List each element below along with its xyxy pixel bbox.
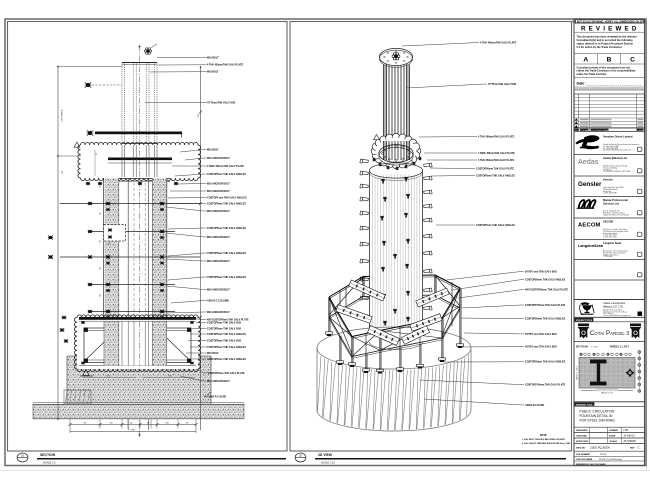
svg-text:4 THK 450mmTHK GALV PLATE: 4 THK 450mmTHK GALV PLATE	[207, 64, 244, 67]
svg-text:Aedas: Aedas	[578, 157, 599, 166]
svg-text:450*COSTOP50mm THK GALV PLATE: 450*COSTOP50mm THK GALV PLATE	[525, 289, 568, 292]
svg-text:T 2875-3088: T 2875-3088	[603, 256, 612, 258]
svg-text:4 THK 450mmTHK GALV PLATE: 4 THK 450mmTHK GALV PLATE	[478, 159, 515, 162]
svg-text:4 SIDE 450mmTHK GALV PLATE: 4 SIDE 450mmTHK GALV PLATE	[478, 152, 515, 155]
svg-text:50: 50	[96, 153, 98, 155]
svg-text:Services Ltd.: Services Ltd.	[603, 201, 620, 205]
svg-text:DO NOT SCALE DRAWING. VERIFY A: DO NOT SCALE DRAWING. VERIFY ALL DIMENSI…	[573, 20, 647, 23]
svg-text:COSTOP5mm THK GALV ANGLES: COSTOP5mm THK GALV ANGLES	[207, 227, 246, 230]
svg-text:DESIGNED: DESIGNED	[576, 430, 588, 432]
svg-text:M16 ANCHOR BOLT: M16 ANCHOR BOLT	[207, 182, 230, 185]
svg-text:COSTOP5mm THK GALV SHS: COSTOP5mm THK GALV SHS	[207, 339, 241, 342]
svg-text:DRAWN: DRAWN	[610, 429, 619, 432]
svg-text:KEY PLAN: KEY PLAN	[576, 345, 588, 348]
svg-text:Date :: Date :	[577, 82, 587, 86]
svg-text:COSTOP5mm THK GALV ANGLES: COSTOP5mm THK GALV ANGLES	[207, 346, 246, 349]
svg-text:2. ALL FILLET WELDED SHOULD BE: 2. ALL FILLET WELDED SHOULD BE 6mm THK.	[522, 442, 571, 445]
svg-text:This document has been reviewe: This document has been reviewed by the r…	[577, 34, 637, 38]
svg-text:COTAI PARCEL 3: COTAI PARCEL 3	[590, 330, 629, 337]
svg-text:M16 ANCHOR BOLT: M16 ANCHOR BOLT	[207, 260, 230, 263]
svg-text:AECOM: AECOM	[603, 220, 614, 224]
svg-text:Rua de Xangai No.175: Rua de Xangai No.175	[603, 211, 620, 213]
svg-text:500: 500	[100, 240, 102, 243]
svg-text:SECTION: SECTION	[40, 453, 56, 457]
svg-text:13/F, O Macau: 13/F, O Macau	[603, 313, 613, 315]
svg-text:300: 300	[147, 422, 150, 424]
svg-text:status referred to in Project: status referred to in Project Procedure …	[577, 42, 634, 46]
svg-text:AS SHOWN: AS SHOWN	[624, 440, 637, 443]
svg-text:No.263, Edif. China Civil Plaz: No.263, Edif. China Civil Plaza,	[603, 252, 626, 254]
svg-text:A2060 R.C BASE: A2060 R.C BASE	[525, 404, 545, 407]
svg-text:DATE: DATE	[610, 435, 616, 438]
svg-text:844: 844	[166, 422, 169, 424]
svg-text:M16 BOLT: M16 BOLT	[207, 148, 219, 151]
svg-text:Venetian Orient Limited: Venetian Orient Limited	[603, 135, 633, 139]
svg-text:4 THK 450mmTHK GALV PLATE: 4 THK 450mmTHK GALV PLATE	[478, 136, 515, 139]
svg-text:COSTOP5*50mm THK GALV PLATE: COSTOP5*50mm THK GALV PLATE	[525, 304, 566, 307]
svg-text:AECOM: AECOM	[578, 223, 601, 229]
svg-text:NOTE:: NOTE:	[540, 435, 547, 437]
svg-text:SCALE: SCALE	[610, 440, 618, 443]
svg-text:COSTOP5mm THK GALV SHS: COSTOP5mm THK GALV SHS	[207, 321, 241, 324]
svg-text:LangdonSeah: LangdonSeah	[578, 244, 604, 248]
svg-text:5.4 for action by the Trade Co: 5.4 for action by the Trade Contractor.	[577, 45, 623, 49]
svg-text:M16 ANCHOR BOLT: M16 ANCHOR BOLT	[207, 311, 230, 314]
svg-text:M16 BOLT: M16 BOLT	[207, 71, 219, 74]
svg-text:Aedas (Macau) Ltd.: Aedas (Macau) Ltd.	[603, 156, 627, 160]
svg-text:SCALE 1:5: SCALE 1:5	[43, 461, 56, 464]
svg-text:1786: 1786	[198, 114, 200, 118]
svg-text:300: 300	[130, 422, 133, 424]
svg-text:REV: REV	[630, 447, 635, 449]
svg-text:FOUNTAIN DETAIL IN: FOUNTAIN DETAIL IN	[580, 414, 614, 418]
svg-text:CHECKED: CHECKED	[576, 436, 587, 438]
svg-text:1786 (VARIES): 1786 (VARIES)	[61, 109, 64, 122]
svg-text:M16 BOLT: M16 BOLT	[207, 352, 219, 355]
svg-text:C: C	[630, 57, 635, 64]
svg-text:COSTOP50mm THK GALV ANGLES: COSTOP50mm THK GALV ANGLES	[525, 279, 566, 282]
svg-text:COSTOP50mm THK GALV PLATE: COSTOP50mm THK GALV PLATE	[476, 168, 514, 171]
svg-text:DWG NO: DWG NO	[576, 447, 586, 449]
svg-text:1. ALL BOLT SHOULD BE FIXING O: 1. ALL BOLT SHOULD BE FIXING ON SITE.	[522, 438, 566, 441]
svg-text:M16 ANCHOR BOLT: M16 ANCHOR BOLT	[207, 380, 230, 383]
svg-text:COSTOP5mm THK GALV ANGLES: COSTOP5mm THK GALV ANGLES	[207, 173, 246, 176]
svg-text:B: B	[607, 57, 612, 64]
svg-text:PARCEL 1, LOT 2: PARCEL 1, LOT 2	[610, 345, 630, 348]
svg-text:14-JUN-13: 14-JUN-13	[624, 436, 636, 438]
svg-text:under the Trade Contract.: under the Trade Contract.	[577, 73, 608, 76]
svg-text:31529: 31529	[600, 454, 607, 456]
svg-text:M16 BOLT: M16 BOLT	[207, 56, 219, 59]
svg-text:COSTOP5mm THK GALV ANGLES: COSTOP5mm THK GALV ANGLES	[207, 333, 246, 336]
svg-text:1 : 1000: 1 : 1000	[591, 346, 599, 348]
svg-text:300: 300	[186, 422, 189, 424]
svg-text:A350 R.C COLUMN: A350 R.C COLUMN	[207, 299, 229, 302]
svg-text:JOB NUMBER: JOB NUMBER	[576, 454, 590, 456]
svg-text:4 THK 450mmTHK GALV PLATE: 4 THK 450mmTHK GALV PLATE	[480, 42, 517, 45]
svg-text:50*50*5 mm THK GALV SHS: 50*50*5 mm THK GALV SHS	[525, 333, 557, 336]
svg-text:844: 844	[110, 422, 113, 424]
svg-text:M16 ANCHOR BOLT: M16 ANCHOR BOLT	[207, 157, 230, 160]
svg-text:(TYP.): (TYP.)	[106, 244, 111, 246]
svg-text:M16 ANCHOR BOLT: M16 ANCHOR BOLT	[207, 190, 230, 193]
svg-text:PARCEL 1/2 95: PARCEL 1/2 95	[601, 392, 613, 395]
svg-text:31529_PQ_B5200.dwg: 31529_PQ_B5200.dwg	[599, 459, 622, 461]
svg-text:COSTOP5mm THK GALV ANGLES: COSTOP5mm THK GALV ANGLES	[207, 252, 246, 255]
svg-text:75*75mmTHK GALV SHS: 75*75mmTHK GALV SHS	[207, 101, 236, 104]
svg-text:500: 500	[100, 212, 102, 215]
svg-text:M16 ANCHOR BOLT: M16 ANCHOR BOLT	[207, 288, 230, 291]
svg-text:LHO: LHO	[624, 430, 629, 432]
svg-text:C: C	[638, 445, 640, 449]
svg-text:A1060 R.C BASE: A1060 R.C BASE	[207, 396, 227, 399]
svg-text:300: 300	[84, 422, 87, 424]
svg-text:M16 ANCHOR BOLT: M16 ANCHOR BOLT	[207, 210, 230, 213]
svg-text:COSTOP5mm THK GALV SHS: COSTOP5mm THK GALV SHS	[207, 327, 241, 330]
svg-text:Yadea Construction: Yadea Construction	[603, 301, 626, 305]
svg-text:COSTOP50mm THK GALV ANGLES: COSTOP50mm THK GALV ANGLES	[525, 361, 566, 364]
svg-text:CAD FILE NAME: CAD FILE NAME	[576, 458, 593, 461]
svg-text:DRAWING TITLE: DRAWING TITLE	[576, 403, 593, 406]
svg-text:50*50*5 mm THK GALV SHS: 50*50*5 mm THK GALV SHS	[525, 270, 557, 273]
svg-text:Gensler: Gensler	[578, 181, 602, 188]
svg-text:PARCEL 1, LOT 1: PARCEL 1, LOT 1	[575, 366, 578, 380]
svg-text:500: 500	[62, 171, 64, 174]
svg-text:3D VIEW: 3D VIEW	[318, 453, 333, 457]
svg-text:COSTOP5mm THK GALV ANGLES: COSTOP5mm THK GALV ANGLES	[476, 174, 515, 177]
svg-text:Tel: (853) 2875-3288 Fax: 287: Tel: (853) 2875-3288 Fax: 2875-3266	[603, 171, 630, 173]
svg-text:REVIEWED: REVIEWED	[581, 25, 640, 32]
svg-text:A: A	[583, 57, 588, 64]
svg-text:COSTOP5mm THK GALV ANGLES: COSTOP5mm THK GALV ANGLES	[207, 202, 246, 205]
svg-text:21/F Macau: 21/F Macau	[603, 169, 612, 171]
svg-text:Gensler: Gensler	[603, 178, 613, 182]
svg-text:F +852 2317-7609: F +852 2317-7609	[603, 237, 617, 239]
svg-text:*COSTOP5mm THK GALV PLATE: *COSTOP5mm THK GALV PLATE	[207, 372, 245, 375]
svg-text:Fax: (853) 2882-8666 www.san: Fax: (853) 2882-8666 www.sands.com	[603, 150, 632, 152]
svg-text:Langdon Seah: Langdon Seah	[603, 241, 622, 245]
svg-text:50*50*5 mm THK GALV SHS: 50*50*5 mm THK GALV SHS	[525, 346, 557, 349]
svg-text:500: 500	[100, 267, 102, 270]
svg-text:500: 500	[100, 185, 102, 188]
svg-text:PUBLIC CIRCULATION: PUBLIC CIRCULATION	[580, 410, 616, 414]
svg-text:APPROVED: APPROVED	[576, 440, 589, 443]
svg-text:COSTOP5mm THK GALV ANGLES: COSTOP5mm THK GALV ANGLES	[207, 276, 246, 279]
svg-text:31529_PQ_B5200: 31529_PQ_B5200	[590, 446, 610, 449]
svg-text:SCALE 1:10: SCALE 1:10	[321, 461, 335, 464]
svg-text:M16 ANCHOR BOLT: M16 ANCHOR BOLT	[207, 236, 230, 239]
svg-text:COSTOP5 mm THK GALV ANGLES: COSTOP5 mm THK GALV ANGLES	[207, 196, 247, 199]
svg-text:Tel: (853) 2882-8888: Tel: (853) 2882-8888	[603, 148, 618, 150]
svg-text:venetian: venetian	[582, 145, 595, 149]
svg-text:COSTOP5*50mm THK GALV PLATE: COSTOP5*50mm THK GALV PLATE	[525, 384, 566, 387]
svg-text:500: 500	[100, 294, 102, 297]
svg-text:Consultant(s)(s) and is accord: Consultant(s)(s) and is accorded the fol…	[577, 38, 633, 42]
svg-text:(Macau) CO. LTD.: (Macau) CO. LTD.	[603, 305, 624, 309]
svg-text:4 SIDE 450mmTHK GALV PLATE: 4 SIDE 450mmTHK GALV PLATE	[207, 165, 244, 168]
svg-text:Hong Kong: Hong Kong	[603, 191, 611, 193]
svg-text:T +852 2505-5088: T +852 2505-5088	[603, 193, 617, 195]
svg-text:China Law Building: China Law Building	[603, 167, 617, 169]
svg-text:2664: 2664	[106, 375, 110, 377]
svg-text:REFERENCE CAD FILE NAME: REFERENCE CAD FILE NAME	[576, 463, 606, 466]
svg-text:2664: 2664	[168, 375, 172, 377]
svg-text:T +852 2317-7000: T +852 2317-7000	[603, 235, 617, 237]
svg-text:75*75mmTHK GALV SHS: 75*75mmTHK GALV SHS	[488, 83, 517, 86]
svg-text:COSTOP5mm THK GALV ANGLES: COSTOP5mm THK GALV ANGLES	[476, 224, 515, 227]
svg-text:COSTOP50mm THK GALV ANGLES: COSTOP50mm THK GALV ANGLES	[525, 318, 566, 321]
svg-text:COSTOP5mm THK GALV ANGLES: COSTOP5mm THK GALV ANGLES	[207, 358, 246, 361]
svg-text:FOR STEEL DIM-WING: FOR STEEL DIM-WING	[580, 418, 616, 422]
